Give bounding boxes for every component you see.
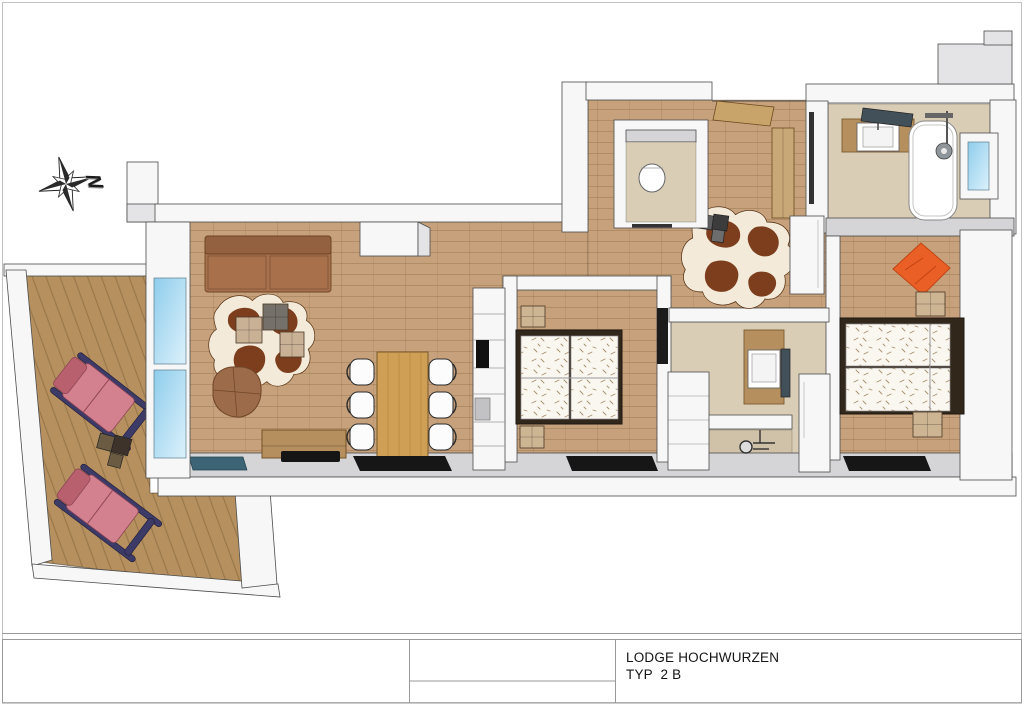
- dining-chair: [347, 424, 374, 450]
- appliance: [475, 398, 490, 420]
- balcony-end-wall: [235, 490, 277, 588]
- chest-of-drawers: [668, 372, 709, 470]
- mirror-2: [781, 349, 790, 397]
- cooktop: [281, 451, 340, 462]
- hall-niche-shelf: [790, 216, 824, 294]
- window-right-glass: [968, 142, 989, 190]
- title-block: [3, 640, 1022, 704]
- built-in-oven: [476, 340, 489, 368]
- window-left-upper: [154, 278, 186, 364]
- dining-chair: [429, 392, 456, 418]
- wall-right: [960, 230, 1012, 480]
- kitchen-tall-unit: [473, 288, 505, 470]
- dining-chair: [429, 424, 456, 450]
- parapet-block: [938, 44, 1012, 84]
- window-bedroom2: [843, 456, 931, 471]
- floorplan-drawing: [0, 0, 1024, 705]
- dining-table: [377, 352, 428, 458]
- sofa: [205, 236, 331, 292]
- duct-box: [360, 222, 418, 256]
- floorplan-page: N LODGE HOCHWURZEN TYP 2 B: [0, 0, 1024, 705]
- window-dining: [353, 456, 452, 471]
- leather-armchair: [213, 367, 261, 417]
- bathtub: [909, 121, 957, 220]
- wall-top-living: [155, 204, 588, 222]
- window-bedroom1: [566, 456, 658, 471]
- bathroom1-door: [809, 112, 814, 204]
- dining-chair: [347, 359, 374, 385]
- shower-bar: [925, 113, 953, 118]
- dining-chair: [429, 359, 456, 385]
- dining-area: [347, 352, 456, 458]
- dining-chair: [347, 392, 374, 418]
- wc-room: [614, 120, 708, 228]
- wall-tv: [657, 308, 668, 364]
- shower-ledge: [700, 415, 792, 429]
- unit-type-label: TYP 2 B: [626, 667, 681, 682]
- project-title: LODGE HOCHWURZEN: [626, 650, 779, 665]
- window-left-lower: [154, 370, 186, 458]
- balcony-door-glass: [189, 457, 247, 470]
